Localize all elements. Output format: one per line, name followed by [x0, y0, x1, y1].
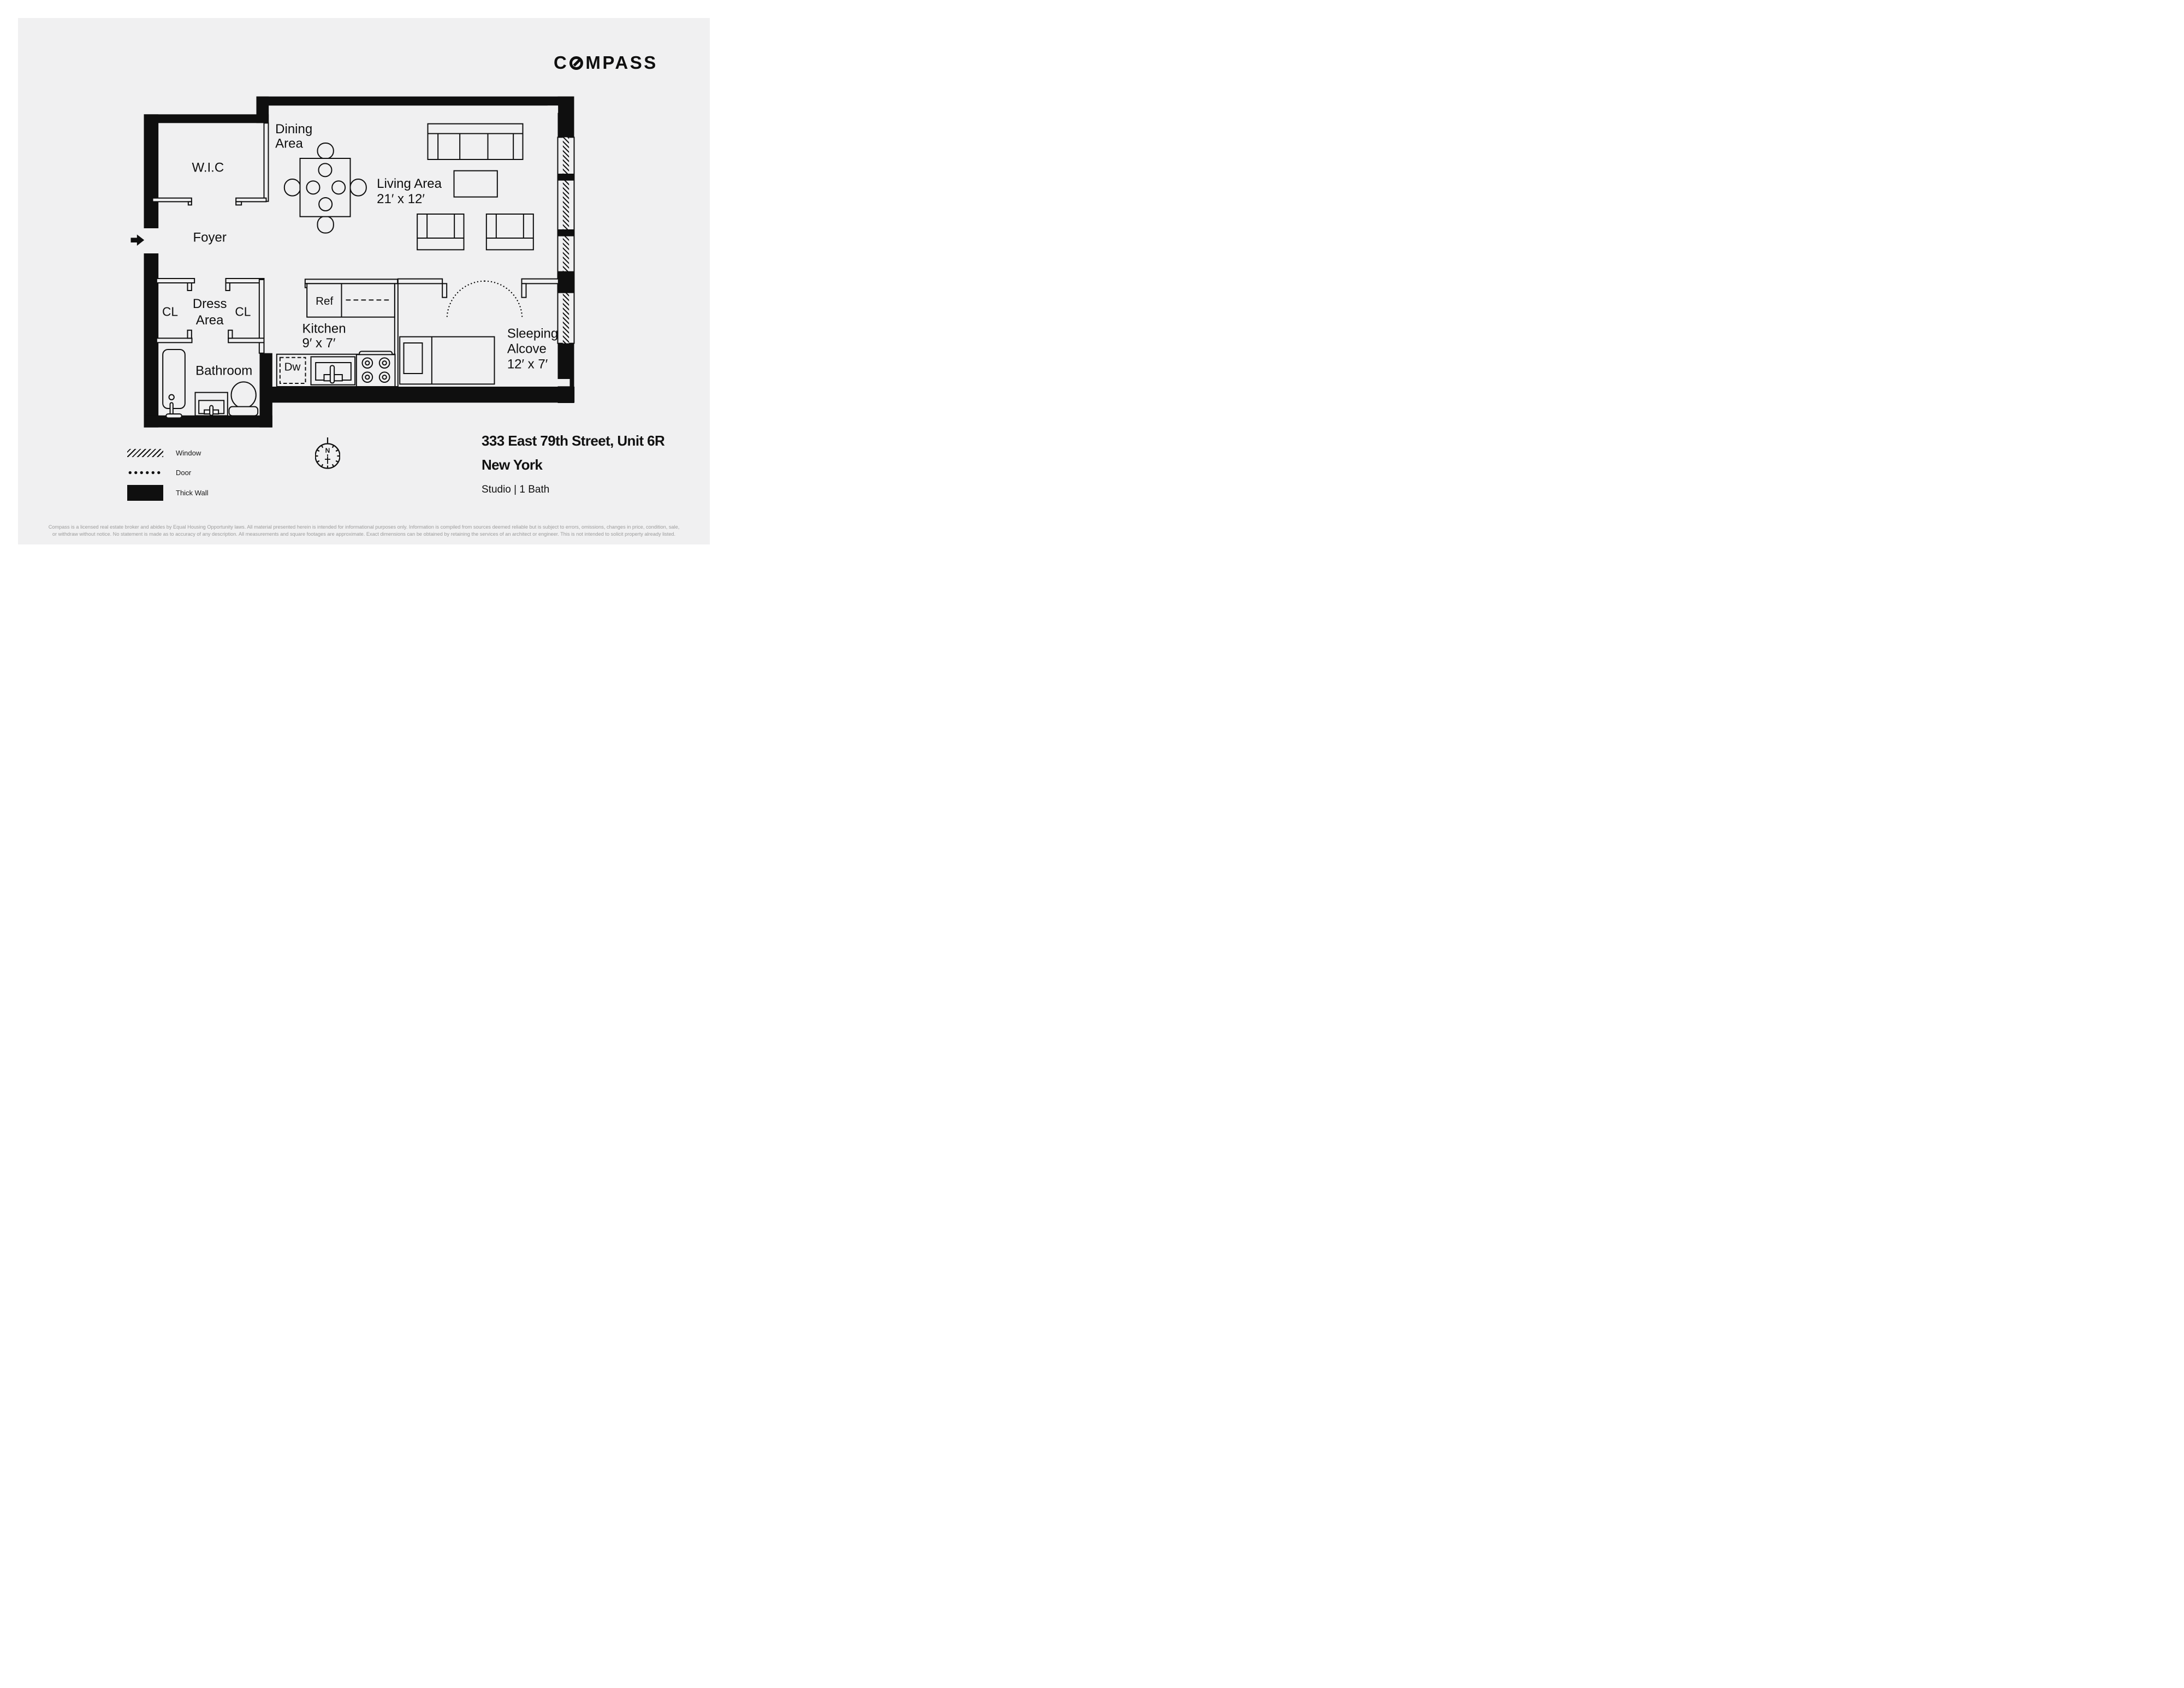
label-ref: Ref — [316, 295, 333, 307]
wall-kitchen-north — [305, 279, 397, 283]
legend-window-row: Window — [127, 449, 201, 457]
sink-faucet — [210, 406, 213, 416]
coffee-table — [454, 171, 497, 197]
toilet-tank — [229, 407, 258, 416]
label-kitchen-1: Kitchen — [302, 321, 346, 336]
label-dining-1: Dining — [275, 122, 312, 137]
burner-center — [383, 375, 387, 379]
sofa — [428, 124, 523, 159]
entry-arrow-icon — [131, 234, 145, 246]
place-setting — [319, 198, 332, 211]
wall-left-upper — [144, 114, 159, 228]
armchair — [417, 214, 464, 250]
place-setting — [319, 163, 332, 176]
door-arc-left — [447, 281, 485, 317]
wall-dress-top-left — [157, 279, 194, 283]
wall-top — [257, 97, 574, 106]
armchair — [486, 214, 533, 250]
wall-wic-bottom-left — [153, 198, 192, 202]
label-kitchen-dims: 9′ x 7′ — [302, 336, 336, 351]
label-dining-2: Area — [275, 137, 303, 151]
wall-dress-bottom-left — [157, 338, 192, 342]
wall-dress-top-right — [226, 279, 264, 283]
north-label: N — [325, 447, 330, 454]
door-jamb — [522, 283, 526, 297]
bathtub — [163, 350, 185, 408]
wall-wic-right — [264, 123, 269, 201]
label-sleeping-2: Alcove — [507, 342, 547, 357]
label-sleeping-dims: 12′ x 7′ — [507, 357, 548, 372]
legend-wall-label: Thick Wall — [176, 489, 208, 497]
door-jamb — [236, 202, 241, 205]
wall-alcove-north-right — [522, 279, 559, 284]
disclaimer-line-2: or withdraw without notice. No statement… — [37, 531, 692, 538]
wall-notch-bottom-right — [556, 379, 570, 386]
toilet-bowl — [232, 382, 256, 408]
wall-dress-bottom-right — [228, 338, 264, 342]
sofa-outline — [428, 124, 523, 159]
tub-drain — [169, 395, 174, 400]
door-arc-right — [485, 281, 523, 317]
compass-logo-o-icon — [569, 56, 583, 70]
alcove-double-door-swing — [447, 281, 522, 317]
label-cl-right: CL — [235, 305, 251, 319]
dining-chair — [318, 143, 334, 159]
bed — [400, 337, 494, 384]
door-jamb — [188, 202, 192, 205]
compass-needle-icon — [573, 59, 580, 66]
wall-corner-top-right — [558, 97, 574, 138]
window-separator — [558, 271, 574, 293]
disclaimer: Compass is a licensed real estate broker… — [37, 524, 692, 538]
stove — [357, 354, 395, 387]
window-hatch — [563, 137, 569, 343]
floorplan-sheet: CMPASS — [0, 0, 728, 562]
door-jamb — [188, 330, 192, 339]
armchair-outline — [417, 214, 464, 250]
listing-address: 333 East 79th Street, Unit 6R — [482, 433, 664, 449]
legend-window-label: Window — [176, 449, 201, 457]
bathroom-fixtures — [163, 350, 258, 418]
wall-bottom-left — [144, 416, 272, 428]
wall-bottom-right — [272, 387, 574, 402]
label-dress-2: Area — [196, 313, 224, 328]
place-setting — [307, 181, 320, 194]
dining-chair — [284, 179, 300, 196]
tub-faucet — [170, 402, 173, 415]
label-dress-1: Dress — [193, 297, 227, 311]
door-jamb — [226, 283, 230, 291]
label-sleeping-1: Sleeping — [507, 327, 558, 341]
north-compass-icon: N — [315, 436, 340, 475]
label-bathroom: Bathroom — [195, 364, 252, 378]
logo-text-prefix: C — [554, 52, 568, 73]
dining-chair — [351, 179, 366, 196]
wall-bathroom-kitchen — [260, 353, 272, 428]
place-setting — [332, 181, 345, 194]
dining-chair — [318, 216, 334, 233]
door-jamb — [228, 330, 232, 339]
wall-notch-top-right — [548, 105, 558, 112]
legend-wall-row: Thick Wall — [127, 485, 208, 501]
thick-wall-swatch-icon — [127, 485, 163, 501]
label-wic: W.I.C — [192, 161, 224, 175]
legend-door-row: Door — [127, 469, 191, 477]
sink-faucet — [330, 365, 334, 383]
window-swatch-icon — [127, 449, 163, 457]
armchair-outline — [486, 214, 533, 250]
label-dw: Dw — [284, 361, 301, 374]
door-jamb — [188, 283, 192, 291]
window-separator — [558, 174, 574, 181]
burner-center — [365, 375, 369, 379]
label-foyer: Foyer — [193, 230, 227, 245]
floorplan-drawing: Dining Area W.I.C Living Area 21′ x 12′ … — [126, 87, 577, 431]
burner-center — [365, 361, 369, 365]
listing-city: New York — [482, 457, 542, 473]
burner-center — [383, 361, 387, 365]
legend-door-label: Door — [176, 469, 191, 477]
tub-base — [166, 414, 182, 418]
dining-set — [284, 143, 366, 233]
logo-text-suffix: MPASS — [585, 52, 657, 73]
door-swatch-icon — [127, 471, 162, 475]
wall-wic-bottom-right — [236, 198, 266, 202]
bed-nightstand — [404, 343, 423, 374]
label-living-1: Living Area — [377, 176, 442, 191]
wall-corner-bottom-right — [558, 343, 574, 403]
door-jamb — [442, 283, 447, 297]
wall-alcove-north-left — [398, 279, 442, 284]
disclaimer-line-1: Compass is a licensed real estate broker… — [37, 524, 692, 531]
window-wall — [558, 137, 574, 343]
wall-wic-top — [144, 114, 269, 123]
label-cl-left: CL — [162, 305, 178, 319]
window-separator — [558, 229, 574, 236]
compass-logo: CMPASS — [554, 52, 658, 73]
label-living-dims: 21′ x 12′ — [377, 192, 425, 206]
listing-details: Studio | 1 Bath — [482, 484, 549, 496]
